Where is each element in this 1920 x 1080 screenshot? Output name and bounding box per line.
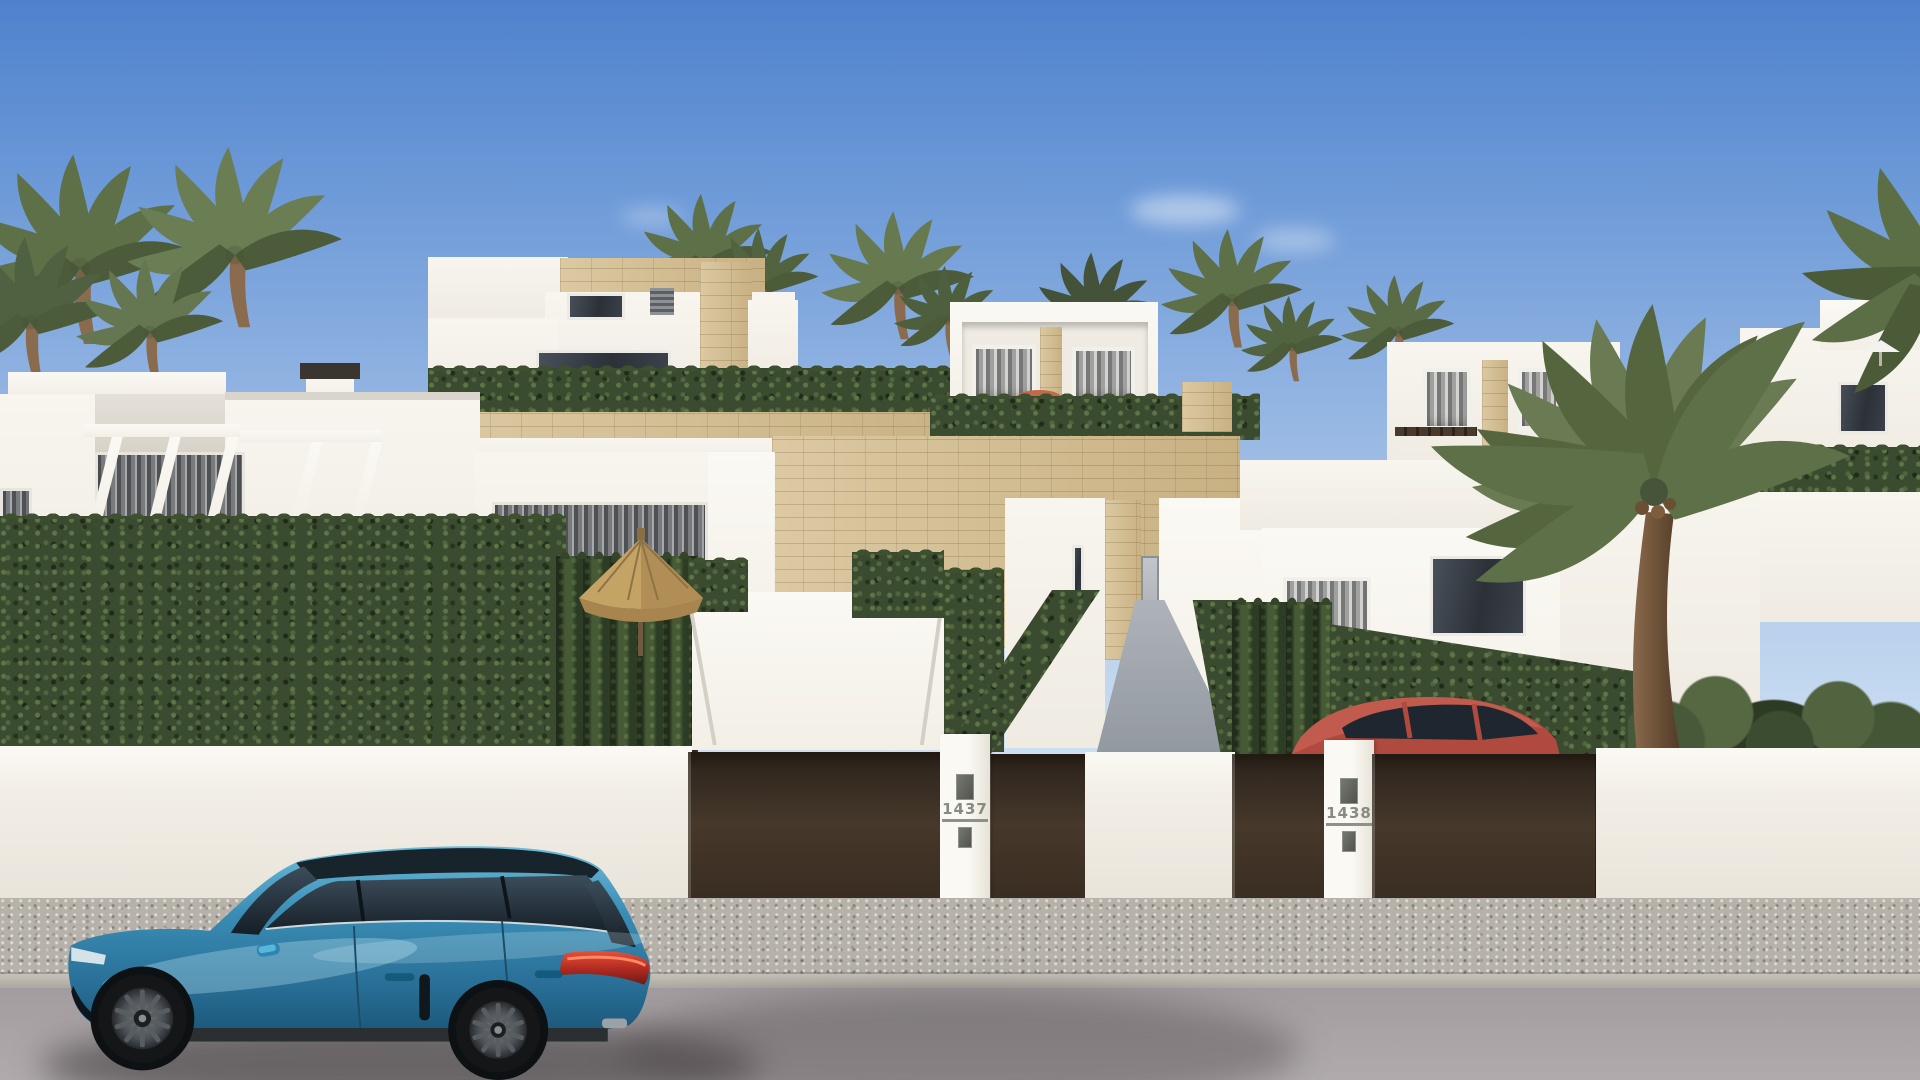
- gate-pillar-1437: 1437: [940, 734, 990, 904]
- car-rear-wheel: [456, 988, 541, 1073]
- mailbox-slot: [1340, 778, 1358, 804]
- intercom-slot[interactable]: [1342, 831, 1356, 852]
- driveway-gate-1438: [1372, 754, 1598, 904]
- pedestrian-gate-1438: [1232, 754, 1328, 904]
- big-palm-trunk: [1633, 512, 1682, 762]
- house-number-plaque: 1437: [942, 800, 988, 822]
- car-front-wheel: [98, 974, 186, 1062]
- scene: 1437 1438: [0, 0, 1920, 1080]
- blue-porsche-car: [55, 830, 700, 1080]
- mailbox-slot: [956, 774, 974, 800]
- street-wall-right: [1596, 748, 1920, 906]
- intercom-slot[interactable]: [958, 827, 972, 848]
- car-door-handle: [385, 973, 415, 981]
- car-exhaust: [602, 1018, 627, 1028]
- house-number-plaque: 1438: [1326, 804, 1372, 826]
- driveway-gate-1437: [688, 752, 944, 902]
- pedestrian-gate-1437: [988, 754, 1088, 902]
- car-side-vent: [419, 974, 430, 1020]
- street-wall-mid: [1085, 752, 1235, 904]
- straw-parasol: [579, 528, 703, 656]
- car-door-handle: [535, 970, 563, 978]
- gate-pillar-1438: 1438: [1324, 740, 1374, 906]
